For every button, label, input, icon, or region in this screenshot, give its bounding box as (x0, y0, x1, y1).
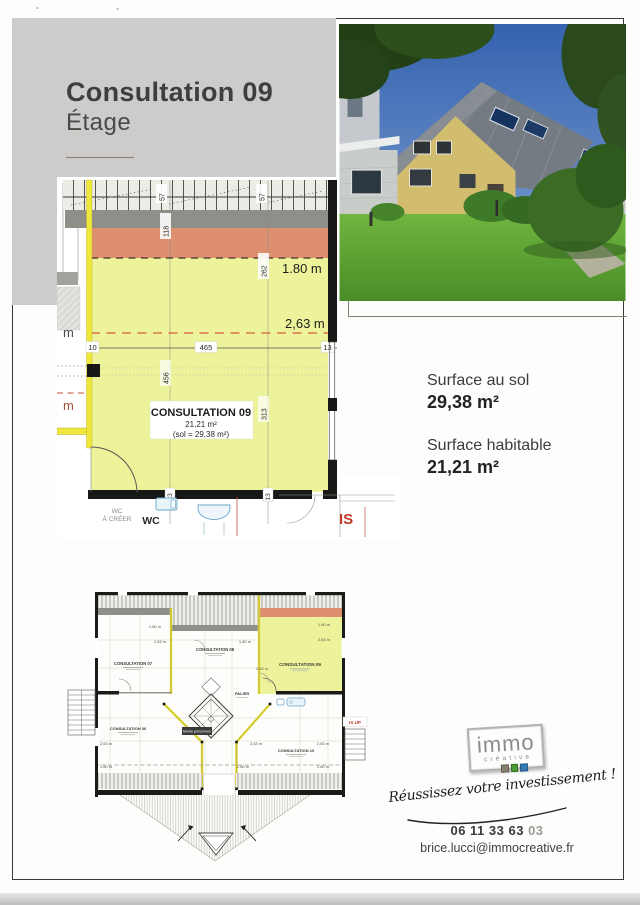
window (460, 174, 476, 188)
floorplan-detail: m m 57 57 (57, 177, 402, 539)
wc-fixture (277, 699, 284, 705)
email-address: brice.lucci@immocreative.fr (392, 841, 602, 855)
phone-main: 06 11 33 63 (450, 823, 523, 838)
surface-summary: Surface au sol 29,38 m² Surface habitabl… (427, 372, 627, 478)
exterior-stair-left (68, 690, 95, 735)
window (414, 141, 431, 154)
dim-180: 1.80 m (282, 261, 322, 276)
low-ceiling-zone (91, 228, 330, 258)
roof-rafter-band: 57 57 (63, 180, 330, 210)
room-name: CONSULTATION 09 (151, 407, 251, 419)
dim-m-upper: m (63, 325, 74, 340)
page-title: Consultation 09 (66, 78, 336, 106)
wc-create-line1: WC (112, 508, 123, 515)
document-page: Consultation 09 Étage (0, 0, 640, 905)
page-subtitle: Étage (66, 109, 336, 137)
logo-square-blue (520, 763, 528, 771)
dim-57-left: 57 (160, 193, 167, 201)
ov-dim: 1.80 m (149, 624, 162, 629)
window (410, 169, 432, 186)
logo-immo-text: immo (476, 732, 535, 756)
surface-hab-label: Surface habitable (427, 437, 627, 455)
palier-label: PALIER (235, 691, 249, 696)
lift-label: Monte personnes (183, 730, 211, 734)
dim-57-right: 57 (260, 193, 267, 201)
scan-speck (36, 7, 39, 9)
room06-label: CONSULTATION 06 (110, 726, 147, 731)
scan-edge-strip (0, 893, 640, 905)
logo-color-squares (501, 763, 528, 772)
ov-dim: 2,63 m (100, 741, 113, 746)
dim-456: 456 (164, 372, 171, 384)
surface-hab-value: 21,21 m² (427, 457, 627, 478)
room-sol-label: (sol = 29,38 m²) (173, 430, 230, 439)
left-wall-yellow (87, 180, 93, 448)
phone-number: 06 11 33 63 03 (392, 823, 602, 838)
ov-dim: 1.80 m (100, 764, 113, 769)
scan-speck (116, 8, 119, 10)
dim-13-wall-mid: 13 (265, 493, 272, 501)
surface-sol-value: 29,38 m² (427, 392, 627, 413)
phone-suffix: 03 (528, 823, 543, 838)
rafter-strip (98, 595, 342, 608)
room10-label: CONSULTATION 10 (278, 748, 315, 753)
ov-dim: 1.80 m (317, 764, 330, 769)
is-up-label: IS UP (349, 720, 361, 725)
floorplan-overview: IS UP Monte personnes CONSULTATION 07 CO… (60, 578, 380, 883)
logo-square-taupe (501, 764, 509, 772)
room-area-label: 21,21 m² (185, 420, 217, 429)
logo-square-green (510, 764, 518, 772)
dim-465: 465 (200, 343, 213, 352)
ov-dim: 1,80 m (239, 639, 252, 644)
ov-dim: 2,63 m (317, 741, 330, 746)
surface-sol-label: Surface au sol (427, 372, 627, 390)
room07-label: CONSULTATION 07 (114, 661, 153, 666)
ov-dim: 2,63 m (318, 637, 331, 642)
lamp-post (496, 200, 499, 216)
wall-post (87, 364, 100, 377)
ov-dim: 2,63 m (154, 639, 167, 644)
room-label-block: CONSULTATION 09 21,21 m² (sol = 29,38 m²… (150, 401, 253, 439)
dim-262: 262 (262, 265, 269, 277)
ov-dim: 2,63 m (250, 741, 263, 746)
wc-create-line2: À CRÉER (103, 514, 132, 523)
is-label: IS (339, 511, 353, 528)
dim-m-lower: m (63, 398, 74, 413)
gray-band (65, 210, 330, 228)
wc-label: WC (142, 515, 160, 527)
dim-10: 10 (88, 343, 96, 352)
ov-dim: 1.80 m (237, 764, 250, 769)
title-rule (66, 157, 134, 158)
window (437, 141, 452, 154)
contact-block: 06 11 33 63 03 brice.lucci@immocreative.… (392, 823, 602, 855)
room08-label: CONSULTATION 08 (196, 647, 235, 652)
dim-313: 313 (262, 408, 269, 420)
ov-dim: 2,53 m (256, 666, 269, 671)
ov-dim: 1.80 m (318, 622, 331, 627)
dim-13-right: 13 (323, 343, 331, 352)
room09-label: CONSULTATION 09 (279, 662, 321, 667)
dim-263: 2,63 m (285, 316, 325, 331)
dim-118: 118 (164, 226, 171, 237)
logo-creative-text: créative (484, 754, 533, 764)
room09-salmon-band (260, 608, 342, 617)
exterior-stair-right: IS UP (343, 717, 367, 760)
